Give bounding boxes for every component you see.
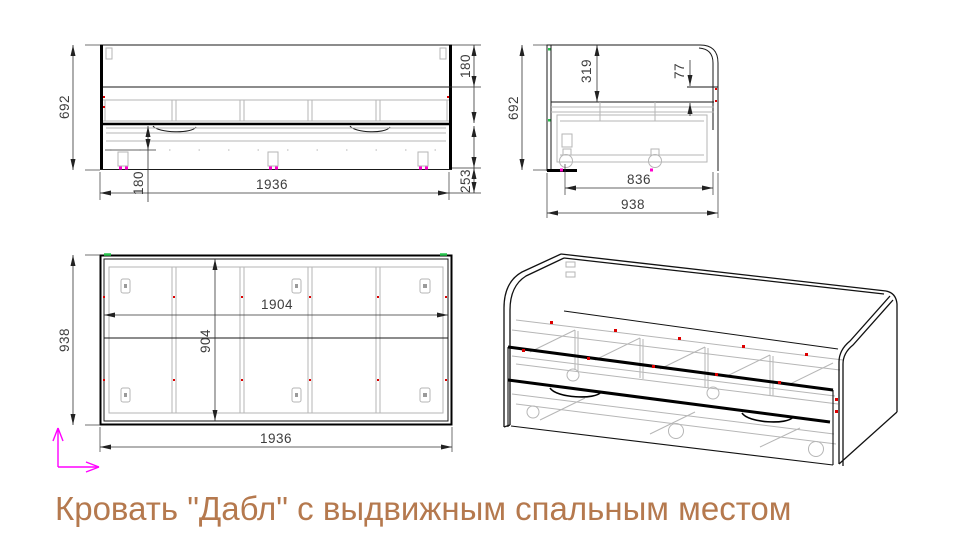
iso-rails: [508, 347, 833, 422]
screw-markers: [522, 321, 838, 413]
dim-top-length: 1936: [260, 431, 292, 446]
dim-front-height: 692: [57, 95, 72, 119]
dim-front-length: 1936: [256, 177, 288, 192]
dim-top-inner-length: 1904: [261, 297, 293, 312]
side-view-body: [547, 45, 718, 171]
top-view-body: [101, 255, 452, 425]
dim-front-base-height: 253: [458, 169, 473, 193]
iso-outline: [504, 254, 897, 466]
dim-top-inner-width: 904: [198, 329, 213, 353]
screw-markers: [715, 88, 717, 102]
dim-side-height: 692: [506, 96, 521, 120]
origin-axes-marker: [53, 428, 99, 472]
dim-side-rail-lip: 77: [672, 63, 687, 79]
front-view-slat-band: [103, 48, 449, 121]
dim-front-drawer-inset: 180: [131, 171, 146, 195]
front-drawer-handle-cutout-2: [350, 126, 390, 132]
front-drawer-handle-cutout: [153, 126, 196, 132]
side-view-dimensions: 692 319 77 836 938: [506, 45, 718, 218]
side-view-details: [548, 48, 717, 172]
screw-markers: [103, 96, 449, 108]
front-view: 692 1936 180 180 253: [57, 45, 481, 202]
technical-drawing: 692 1936 180 180 253: [0, 0, 955, 553]
iso-gray-frame: [512, 262, 843, 457]
top-view-dimensions: 1904 904 938 1936: [57, 255, 452, 452]
top-view: 1904 904 938 1936: [53, 255, 452, 473]
dim-side-depth: 938: [621, 197, 645, 212]
front-view-body: [100, 45, 452, 170]
drawing-page: 692 1936 180 180 253: [0, 0, 955, 553]
dim-front-headboard-band: 180: [458, 54, 473, 78]
drawing-title: Кровать "Дабл" с выдвижным спальным мест…: [55, 490, 935, 528]
dim-top-depth: 938: [57, 328, 72, 352]
dim-side-drawer-depth: 836: [627, 172, 651, 187]
front-view-drawer-details: [103, 96, 449, 170]
isometric-view: [504, 254, 897, 466]
dim-side-top-to-rail: 319: [579, 59, 594, 83]
alignment-markers: [548, 48, 551, 122]
side-view: 692 319 77 836 938: [506, 45, 718, 218]
